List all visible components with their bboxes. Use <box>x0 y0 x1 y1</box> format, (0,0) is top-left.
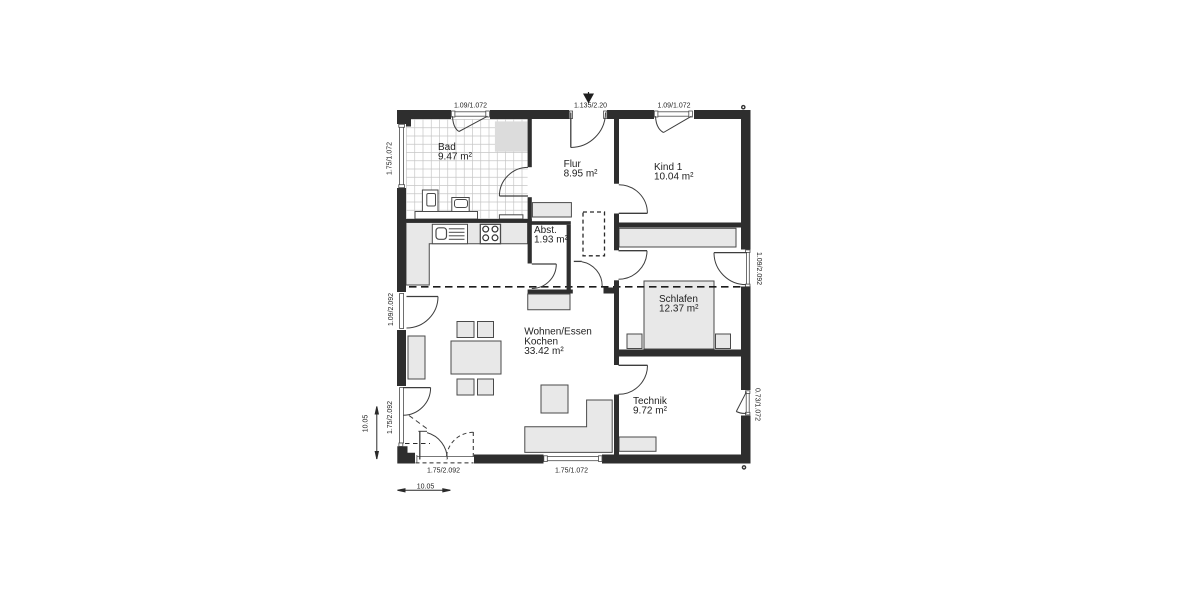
svg-text:1.09/2.092: 1.09/2.092 <box>388 293 395 326</box>
svg-text:33.42 m²: 33.42 m² <box>524 346 564 357</box>
svg-text:10.05: 10.05 <box>417 484 435 491</box>
svg-text:1.93 m²: 1.93 m² <box>534 235 569 246</box>
svg-text:0.73/1.072: 0.73/1.072 <box>754 388 761 421</box>
svg-text:9.72 m²: 9.72 m² <box>633 406 668 417</box>
svg-text:10.04 m²: 10.04 m² <box>654 172 694 183</box>
svg-text:1.75/2.092: 1.75/2.092 <box>387 401 394 434</box>
svg-text:9.47 m²: 9.47 m² <box>438 152 473 163</box>
svg-text:1.09/2.092: 1.09/2.092 <box>755 252 762 285</box>
svg-text:1.09/1.072: 1.09/1.072 <box>454 103 487 110</box>
svg-text:8.95 m²: 8.95 m² <box>564 169 599 180</box>
svg-text:10.05: 10.05 <box>363 415 370 433</box>
svg-text:1.75/1.072: 1.75/1.072 <box>555 468 588 475</box>
svg-text:12.37 m²: 12.37 m² <box>659 304 699 315</box>
svg-text:1.135/2.20: 1.135/2.20 <box>574 103 607 110</box>
svg-text:1.75/1.072: 1.75/1.072 <box>387 142 394 175</box>
svg-text:1.09/1.072: 1.09/1.072 <box>657 103 690 110</box>
svg-text:1.75/2.092: 1.75/2.092 <box>427 468 460 475</box>
